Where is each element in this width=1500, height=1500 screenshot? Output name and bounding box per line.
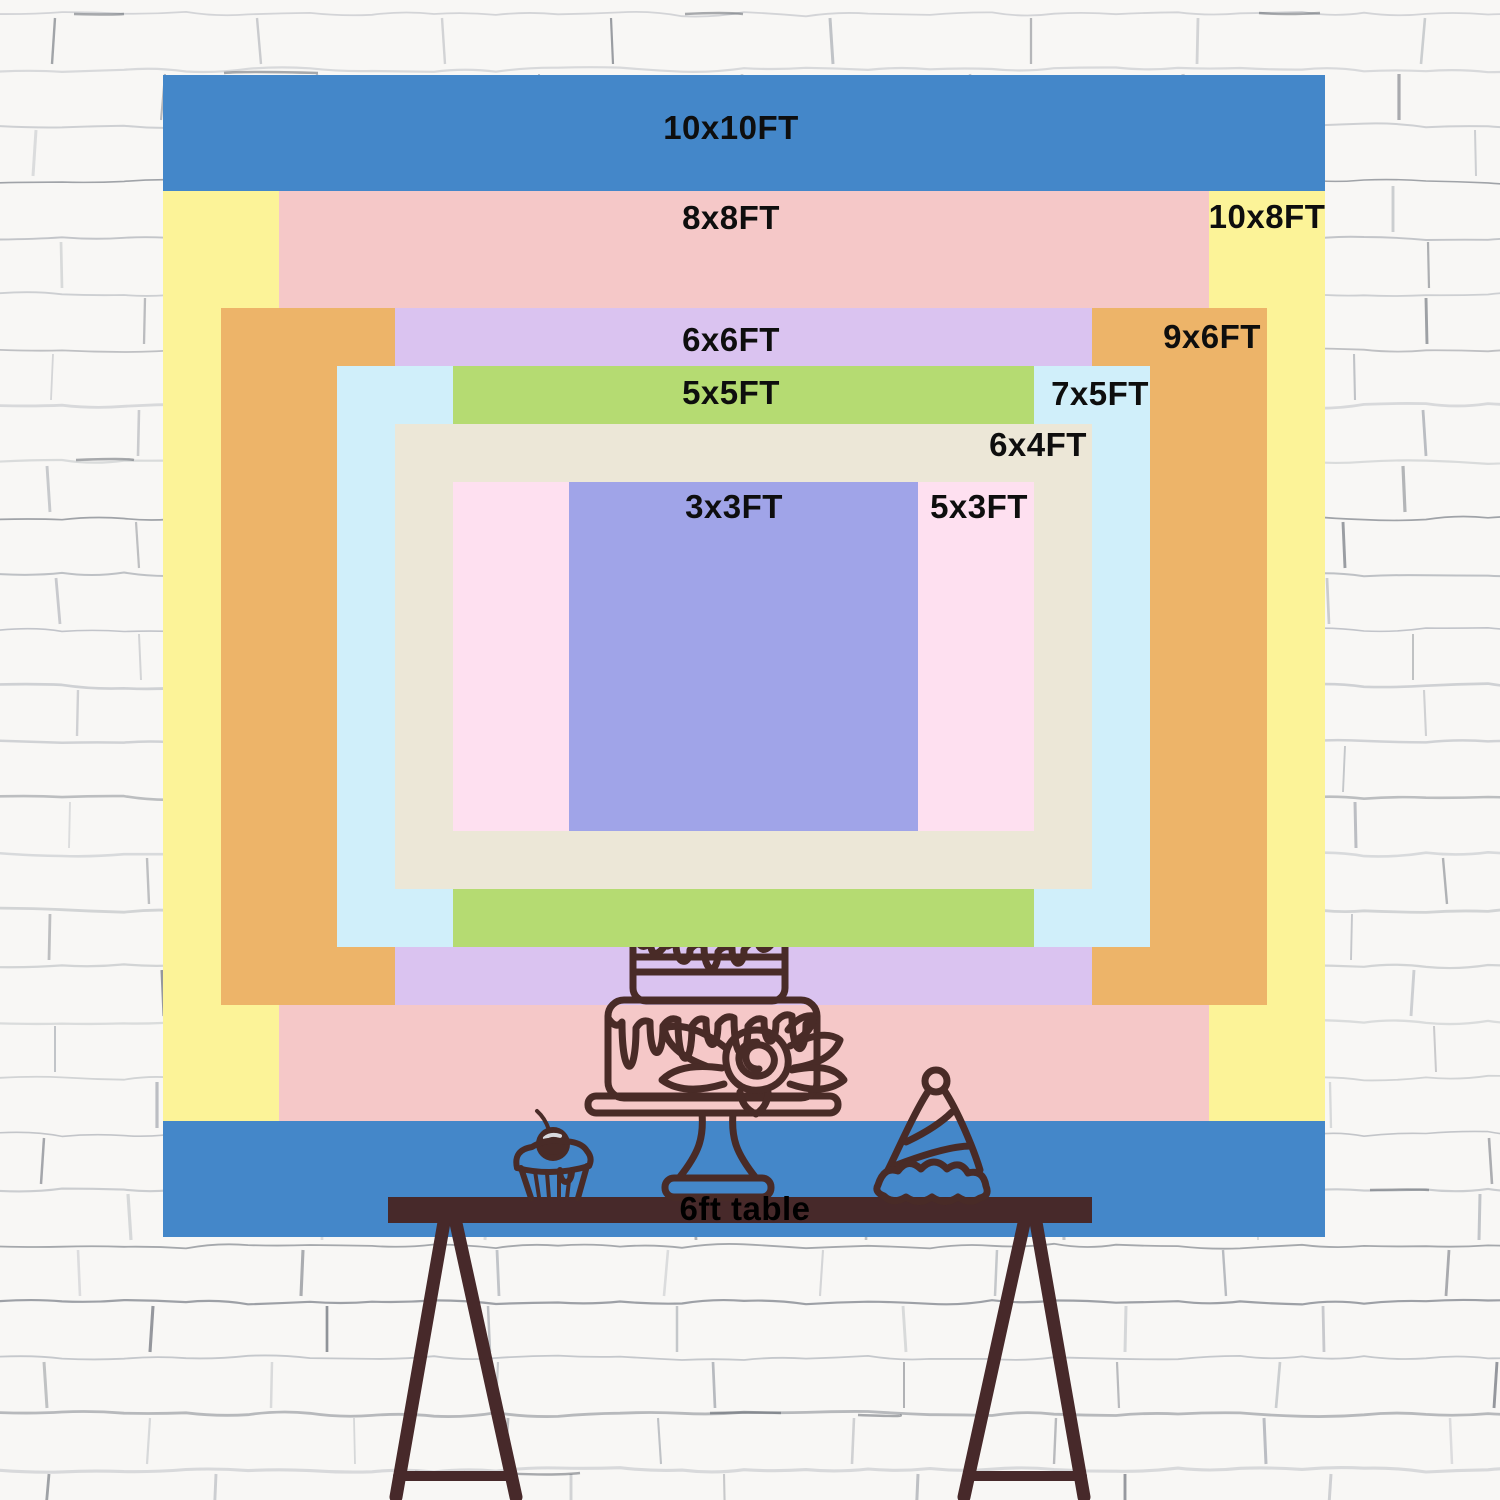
table-leg-left-outer	[396, 1205, 447, 1497]
size-label-5x5: 5x5FT	[682, 374, 780, 412]
table-label: 6ft table	[679, 1190, 810, 1228]
size-label-7x5: 7x5FT	[1051, 375, 1149, 413]
party-hat-illustration	[877, 1070, 987, 1202]
size-label-3x3: 3x3FT	[685, 488, 783, 526]
backdrop-size-chart: 10x10FT10x8FT8x8FT9x6FT6x6FT7x5FT5x5FT6x…	[0, 0, 1500, 1500]
table-leg-right-inner	[964, 1205, 1028, 1497]
backdrop-rect-3x3	[569, 482, 918, 831]
cake-stand	[588, 1096, 838, 1197]
size-label-6x4: 6x4FT	[989, 426, 1087, 464]
size-label-9x6: 9x6FT	[1163, 318, 1261, 356]
table-illustration	[388, 1197, 1092, 1497]
size-label-6x6: 6x6FT	[682, 321, 780, 359]
table-leg-left-inner	[452, 1205, 516, 1497]
table-leg-right-outer	[1033, 1205, 1084, 1497]
size-label-10x10: 10x10FT	[663, 109, 799, 147]
size-label-5x3: 5x3FT	[930, 488, 1028, 526]
cupcake-illustration	[516, 1111, 590, 1198]
size-label-8x8: 8x8FT	[682, 199, 780, 237]
size-label-10x8: 10x8FT	[1209, 198, 1326, 236]
